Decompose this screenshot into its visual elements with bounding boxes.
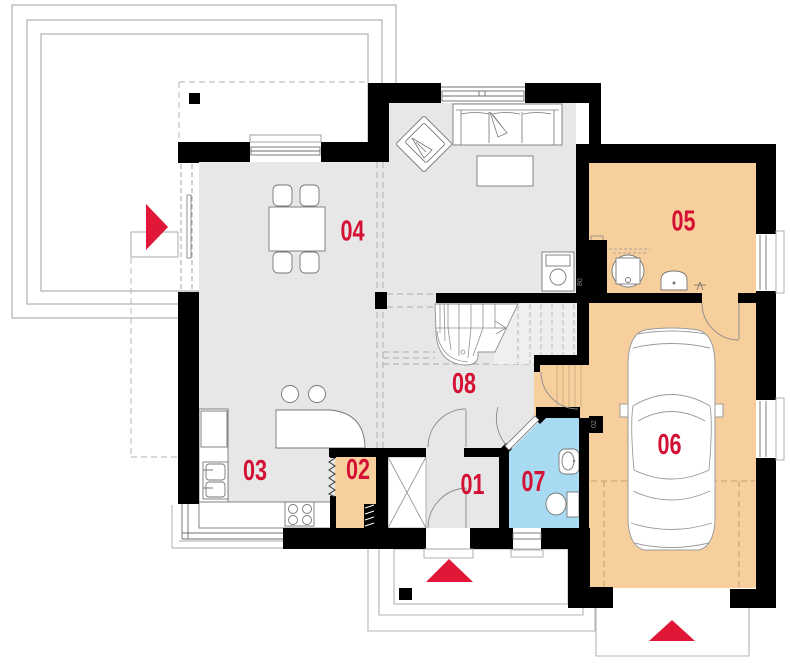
svg-text:02: 02 bbox=[346, 454, 370, 486]
svg-text:05: 05 bbox=[672, 206, 696, 238]
svg-text:03: 03 bbox=[243, 455, 267, 487]
svg-text:80: 80 bbox=[577, 278, 584, 286]
svg-text:07: 07 bbox=[522, 466, 546, 498]
svg-text:08: 08 bbox=[452, 368, 476, 400]
svg-text:01: 01 bbox=[461, 469, 485, 501]
svg-text:04: 04 bbox=[341, 216, 365, 248]
svg-text:06: 06 bbox=[658, 429, 682, 461]
svg-text:02: 02 bbox=[591, 420, 598, 428]
